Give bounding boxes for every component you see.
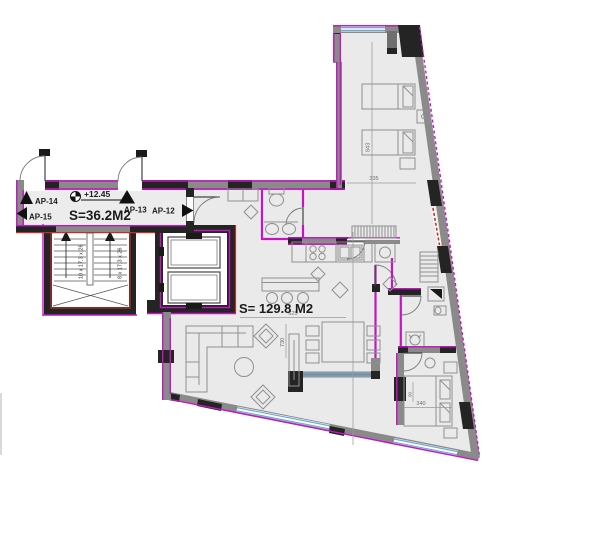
elevator-car-1 xyxy=(159,233,220,268)
corridor-door-opening-2 xyxy=(118,179,142,191)
wall-pillar xyxy=(158,350,174,363)
elevator-shaft xyxy=(147,225,236,314)
dim-730: 730 xyxy=(280,338,286,347)
label-ap15: AP-15 xyxy=(29,213,52,222)
dim-335: 335 xyxy=(369,176,378,182)
corridor-area-label: S=36.2M2 xyxy=(69,208,131,223)
stair-flight-right-label: 8 x 17,3 x 26 xyxy=(118,248,124,280)
stair-flight-left-label: 10 x 17,3 x 26 xyxy=(79,244,85,279)
floor-plan-page: 10 x 17,3 x 26 8 x 17,3 x 26 xyxy=(0,0,610,536)
corridor-door-2 xyxy=(118,150,147,181)
scan-edge-line xyxy=(0,393,2,455)
elevator-car-2 xyxy=(159,272,220,309)
label-ap12: AP-12 xyxy=(152,207,175,216)
label-ap14: AP-14 xyxy=(35,197,58,206)
level-marker-icon xyxy=(71,192,81,202)
corridor-door-1 xyxy=(20,149,50,181)
apartment-area-label: S= 129.8 M2 xyxy=(239,301,313,316)
dim-90: 90 xyxy=(408,391,413,397)
wall-pillar xyxy=(288,371,303,392)
level-value: +12.45 xyxy=(84,189,111,199)
floor-plan-drawing: 10 x 17,3 x 26 8 x 17,3 x 26 xyxy=(0,0,610,536)
dim-340: 340 xyxy=(416,401,425,407)
stairwell: 10 x 17,3 x 26 8 x 17,3 x 26 xyxy=(43,224,137,316)
dim-843: 843 xyxy=(366,143,372,152)
